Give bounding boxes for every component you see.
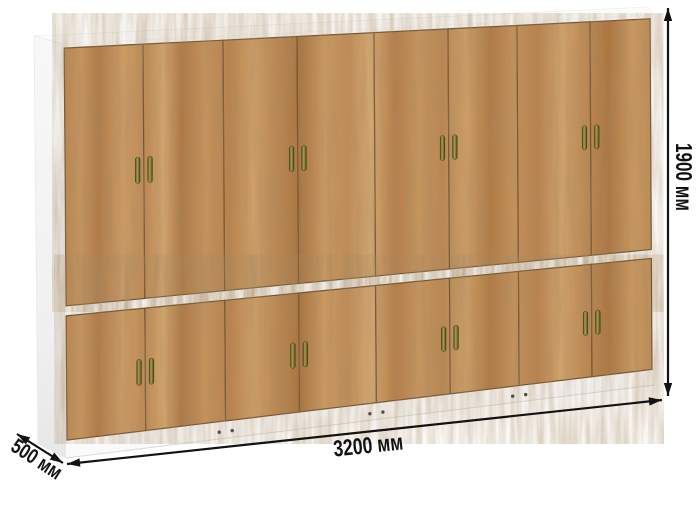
plinth-foot-dot (511, 395, 514, 398)
height-arrowhead (664, 8, 672, 21)
height-dimension-label: 1900 мм (671, 143, 697, 211)
door-handle (148, 156, 153, 182)
lower-door-6 (450, 271, 520, 393)
lower-door-4 (299, 286, 377, 413)
plinth-foot-dot (524, 393, 527, 396)
lower-door-3 (225, 293, 300, 421)
upper-door-7 (517, 22, 591, 262)
door-handle (583, 311, 588, 335)
width-arrowhead (67, 458, 80, 466)
upper-door-1 (64, 44, 145, 306)
door-handle (453, 135, 458, 160)
door-handle (135, 157, 140, 183)
plinth-foot-dot (231, 429, 234, 432)
height-arrowhead (664, 383, 672, 396)
door-handle (137, 359, 142, 385)
upper-door-6 (448, 26, 518, 270)
plinth-foot-dot (368, 412, 371, 415)
door-handle (302, 146, 307, 171)
door-handle (582, 126, 587, 150)
door-handle (441, 327, 446, 352)
upper-door-5 (374, 29, 450, 276)
width-arrowhead (649, 397, 662, 405)
door-handle (149, 358, 154, 384)
lower-door-5 (376, 278, 451, 403)
product-image: 3200 мм 1900 мм 500 мм (0, 0, 700, 522)
lower-door-7 (519, 264, 593, 385)
door-handle (440, 136, 445, 161)
upper-door-4 (297, 33, 376, 284)
door-handle (595, 125, 600, 149)
door-handle (291, 343, 296, 368)
door-handle (289, 146, 294, 171)
door-handle (303, 342, 308, 367)
upper-door-2 (143, 40, 225, 298)
upper-door-3 (223, 37, 299, 291)
plinth-foot-dot (381, 410, 384, 413)
lower-door-1 (66, 308, 146, 440)
lower-door-2 (145, 300, 226, 430)
door-handle (454, 325, 459, 350)
wardrobe-render: 3200 мм 1900 мм 500 мм (0, 0, 700, 522)
wardrobe-side-panel (34, 36, 66, 458)
door-handle (596, 310, 601, 334)
plinth-foot-dot (218, 431, 221, 434)
lower-door-8 (591, 258, 652, 376)
